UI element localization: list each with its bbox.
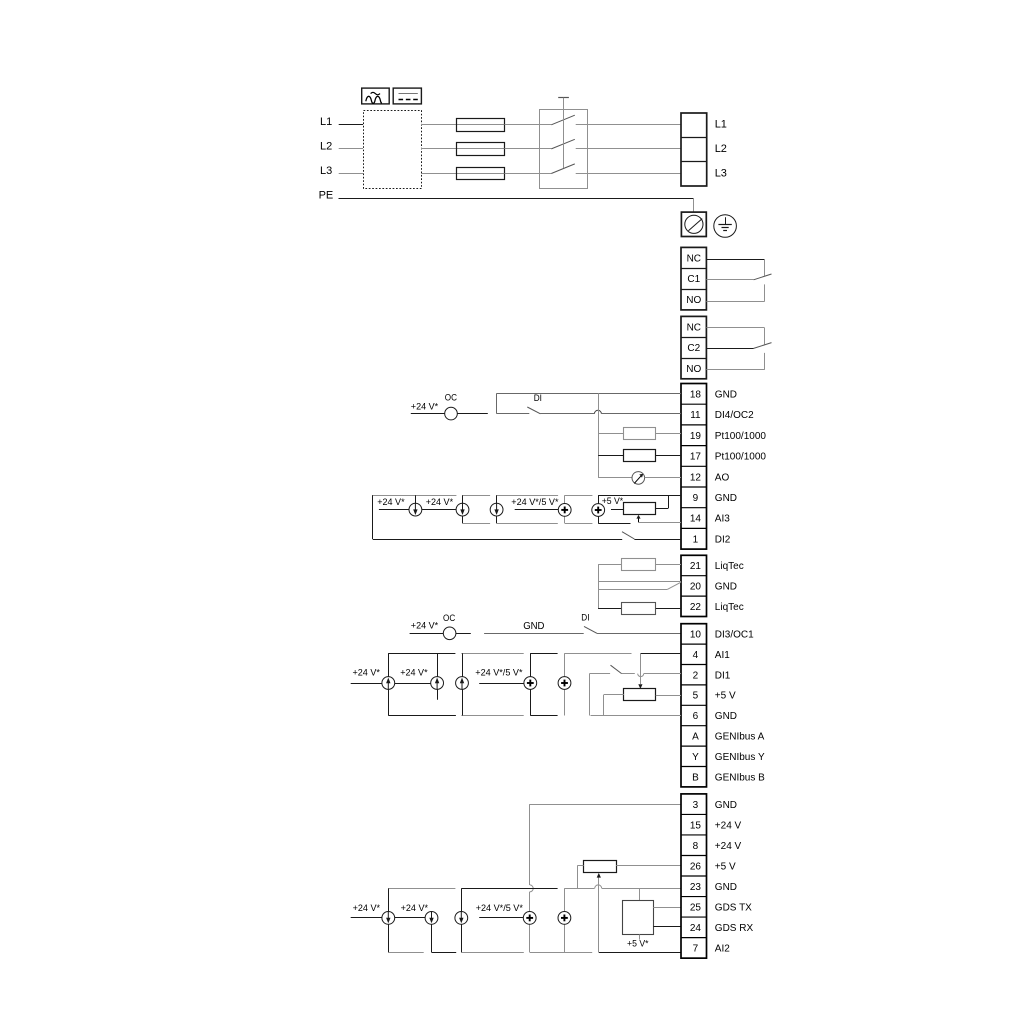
svg-text:Y: Y (692, 752, 699, 763)
svg-text:B: B (692, 772, 699, 783)
svg-text:NO: NO (686, 295, 701, 306)
svg-text:GDS RX: GDS RX (715, 923, 754, 934)
svg-text:GND: GND (715, 493, 737, 504)
svg-text:+24 V*: +24 V* (411, 402, 439, 413)
svg-text:GND: GND (715, 389, 737, 400)
svg-text:+5 V*: +5 V* (627, 938, 649, 949)
svg-text:GND: GND (715, 800, 737, 811)
svg-text:+24 V*: +24 V* (401, 903, 429, 914)
svg-text:OC: OC (445, 393, 457, 404)
svg-text:+24 V: +24 V (715, 841, 742, 852)
svg-text:L3: L3 (320, 165, 332, 177)
svg-text:+24 V: +24 V (715, 820, 742, 831)
svg-text:+24 V*: +24 V* (353, 667, 381, 678)
svg-text:9: 9 (693, 493, 699, 504)
svg-text:14: 14 (690, 514, 702, 525)
svg-text:DI: DI (534, 393, 542, 404)
svg-text:NO: NO (686, 364, 701, 375)
svg-text:PE: PE (319, 189, 334, 201)
svg-text:+5 V: +5 V (715, 861, 736, 872)
svg-text:GENIbus A: GENIbus A (715, 732, 765, 743)
svg-text:GND: GND (715, 711, 737, 722)
svg-text:L2: L2 (320, 141, 332, 153)
svg-text:GDS TX: GDS TX (715, 902, 752, 913)
svg-text:+5 V: +5 V (715, 691, 736, 702)
svg-text:C1: C1 (687, 274, 700, 285)
svg-text:AO: AO (715, 472, 730, 483)
svg-text:L3: L3 (715, 167, 727, 179)
svg-text:NC: NC (687, 253, 701, 264)
svg-text:18: 18 (690, 389, 702, 400)
svg-text:4: 4 (693, 650, 699, 661)
svg-text:C2: C2 (687, 343, 700, 354)
svg-text:AI2: AI2 (715, 943, 730, 954)
svg-text:+5 V*: +5 V* (602, 496, 624, 507)
svg-text:8: 8 (693, 841, 699, 852)
svg-text:DI4/OC2: DI4/OC2 (715, 410, 754, 421)
svg-text:DI: DI (581, 613, 589, 624)
svg-text:7: 7 (693, 943, 699, 954)
svg-text:+24 V*/5 V*: +24 V*/5 V* (475, 667, 522, 678)
svg-text:NC: NC (687, 322, 701, 333)
svg-text:+24 V*: +24 V* (426, 497, 454, 508)
svg-text:1: 1 (693, 534, 699, 545)
svg-text:+24 V*: +24 V* (400, 667, 428, 678)
svg-text:L1: L1 (715, 118, 727, 130)
svg-text:DI1: DI1 (715, 670, 731, 681)
svg-text:6: 6 (693, 711, 699, 722)
svg-text:10: 10 (690, 630, 702, 641)
svg-text:L1: L1 (320, 116, 332, 128)
svg-text:GND: GND (715, 882, 737, 893)
svg-text:+24 V*/5 V*: +24 V*/5 V* (476, 903, 523, 914)
svg-text:19: 19 (690, 431, 702, 442)
svg-text:20: 20 (690, 582, 702, 593)
svg-text:17: 17 (690, 452, 702, 463)
svg-text:LiqTec: LiqTec (715, 561, 744, 572)
svg-text:+24 V*: +24 V* (377, 497, 405, 508)
svg-text:Pt100/1000: Pt100/1000 (715, 452, 767, 463)
svg-text:AI1: AI1 (715, 650, 730, 661)
svg-text:L2: L2 (715, 143, 727, 155)
svg-text:OC: OC (443, 613, 455, 624)
svg-text:Pt100/1000: Pt100/1000 (715, 431, 767, 442)
svg-text:GENIbus B: GENIbus B (715, 772, 765, 783)
svg-text:24: 24 (690, 923, 702, 934)
svg-text:26: 26 (690, 861, 702, 872)
svg-text:DI3/OC1: DI3/OC1 (715, 630, 754, 641)
svg-text:AI3: AI3 (715, 514, 730, 525)
svg-text:LiqTec: LiqTec (715, 602, 744, 613)
svg-text:11: 11 (690, 410, 701, 421)
svg-text:+24 V*/5 V*: +24 V*/5 V* (511, 497, 558, 508)
svg-text:12: 12 (690, 472, 702, 483)
svg-text:23: 23 (690, 882, 702, 893)
svg-text:21: 21 (690, 561, 702, 572)
svg-text:2: 2 (693, 670, 699, 681)
svg-text:A: A (692, 732, 699, 743)
svg-text:15: 15 (690, 820, 702, 831)
svg-text:+24 V*: +24 V* (353, 903, 381, 914)
svg-text:GENIbus Y: GENIbus Y (715, 752, 765, 763)
svg-text:22: 22 (690, 602, 702, 613)
svg-text:DI2: DI2 (715, 534, 731, 545)
svg-text:GND: GND (715, 582, 737, 593)
svg-text:3: 3 (693, 800, 699, 811)
svg-text:25: 25 (690, 902, 702, 913)
svg-text:GND: GND (523, 621, 544, 632)
svg-text:+24 V*: +24 V* (411, 620, 439, 631)
svg-text:5: 5 (693, 691, 699, 702)
